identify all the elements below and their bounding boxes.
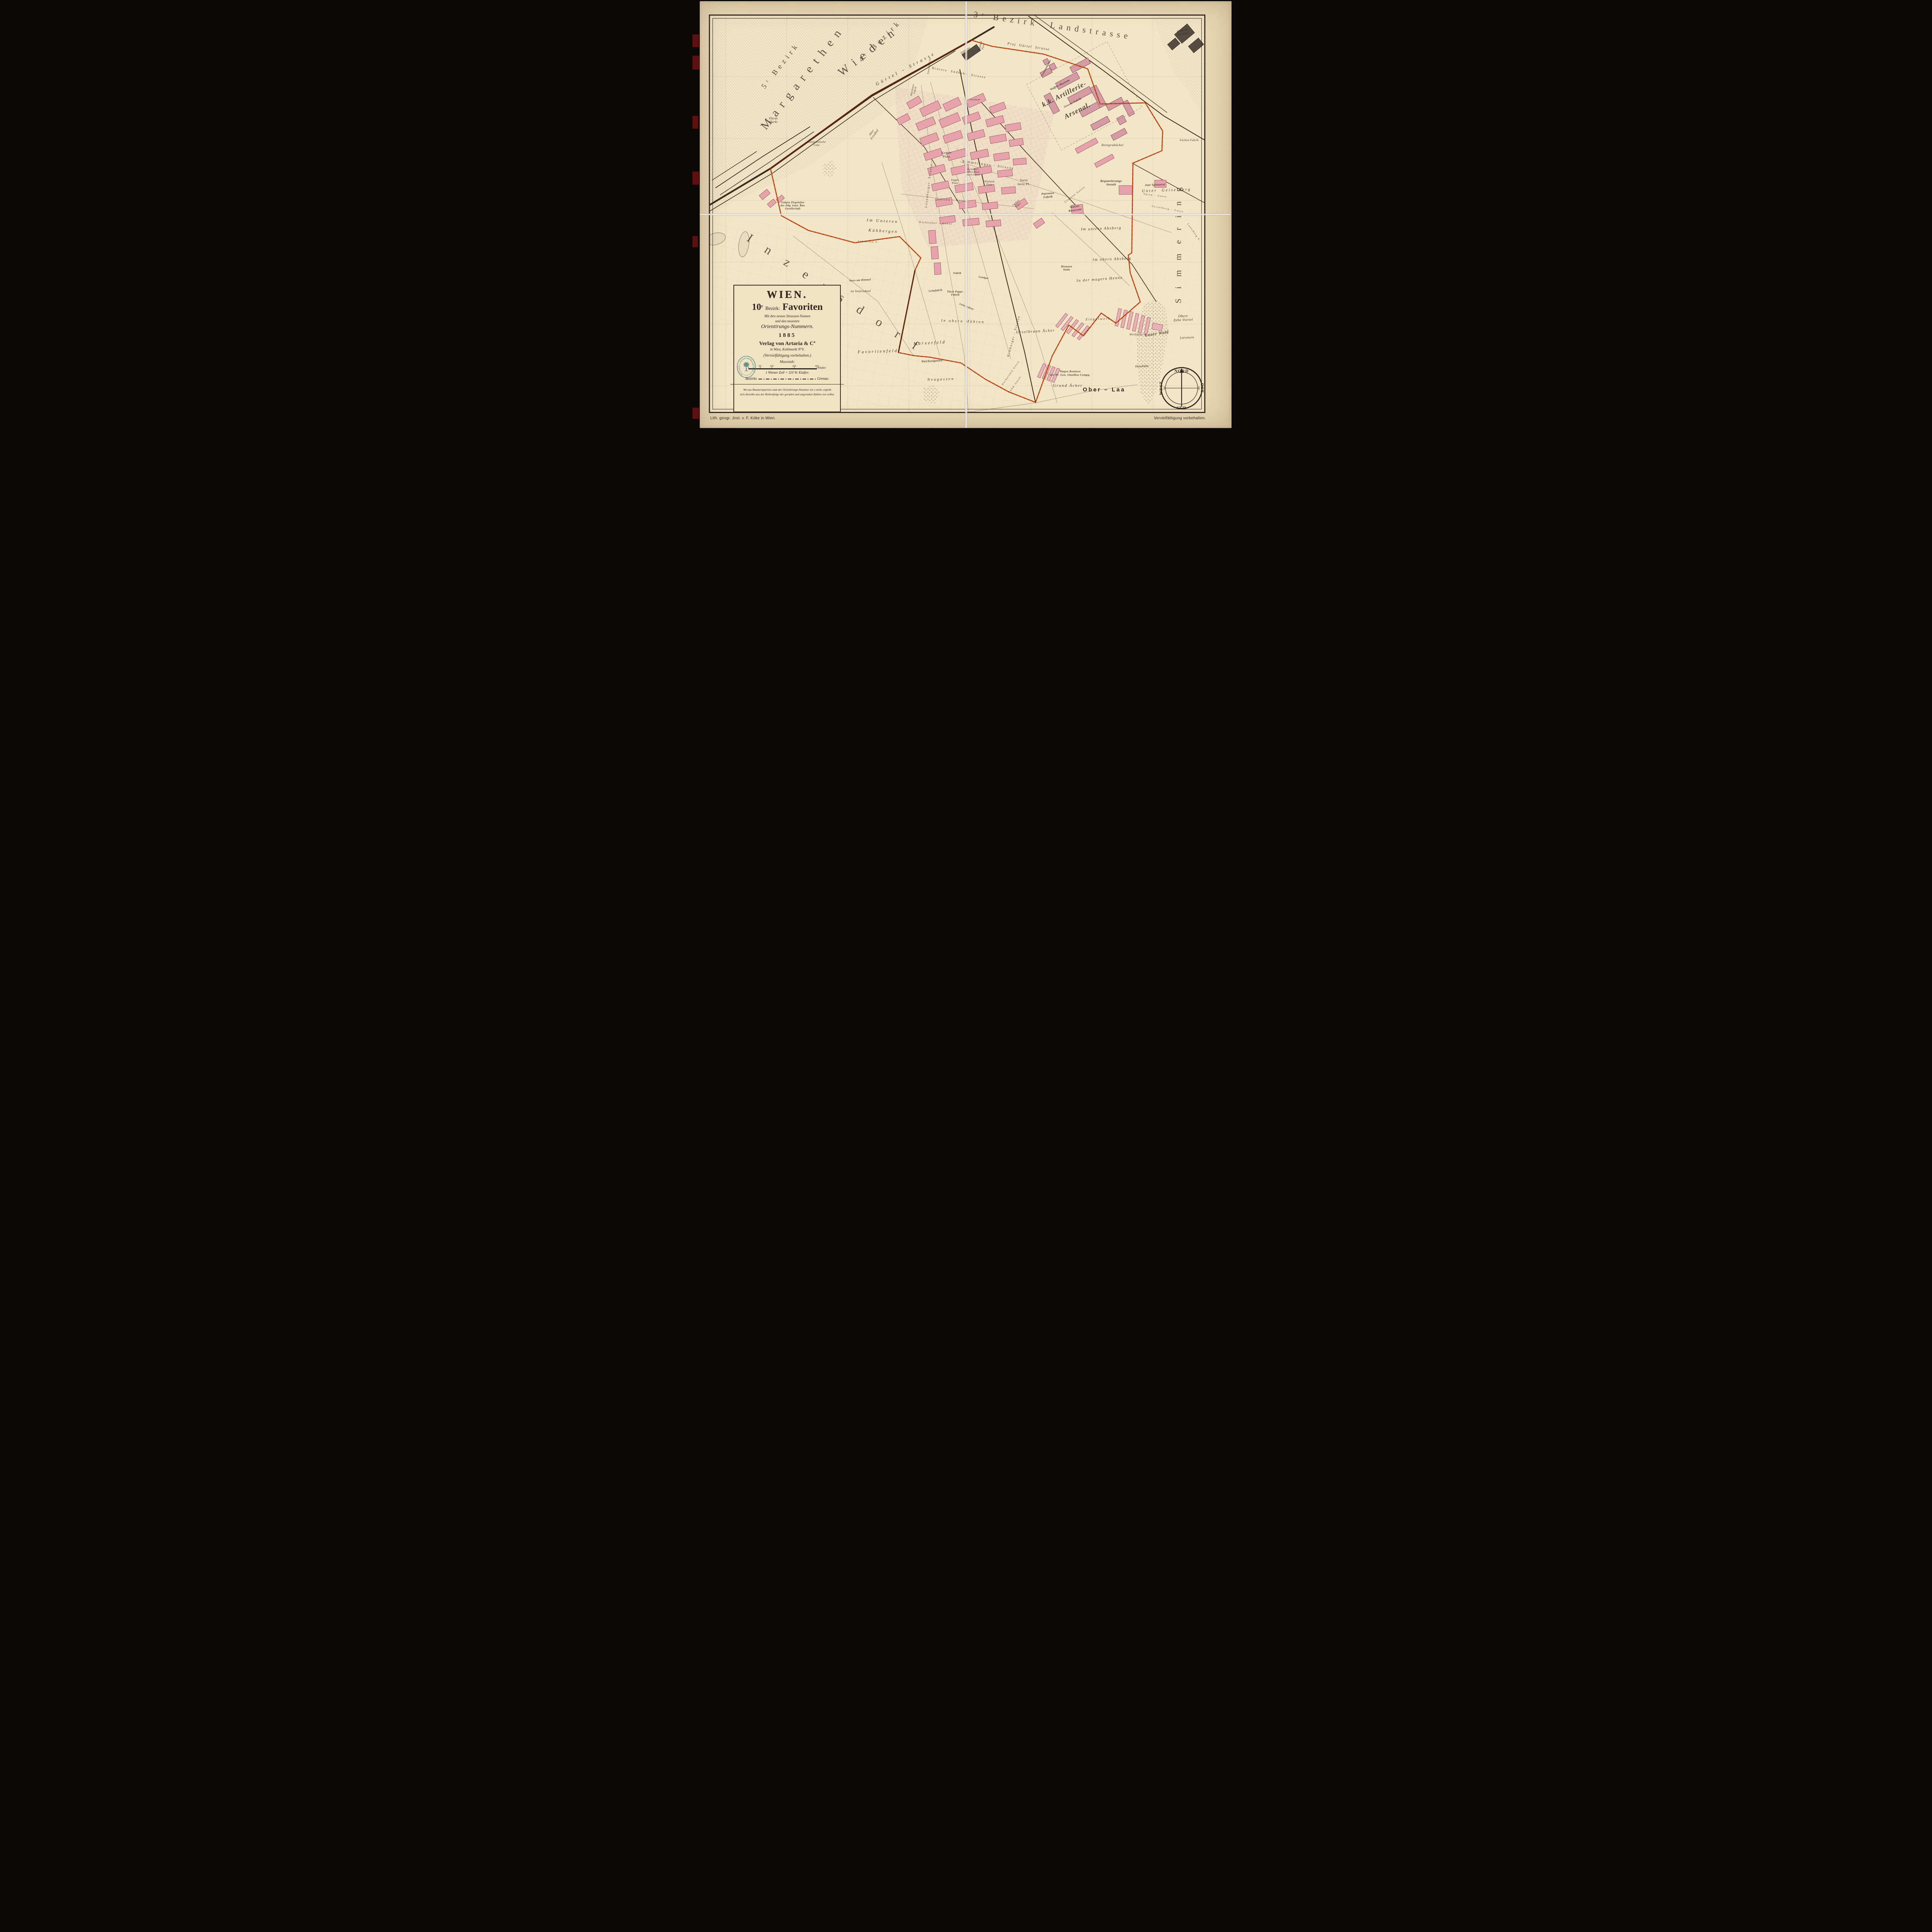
map-label: Maschinen- Fabrik [910, 83, 918, 97]
boundary-line-sample [759, 379, 816, 379]
map-label: Landgut [978, 276, 988, 280]
map-label: Theerhütte [1135, 364, 1149, 368]
scale-label: Massstab: [780, 360, 795, 364]
map-label: S i m m e r i n g [1173, 184, 1183, 303]
reproduction-rights: Vervielfältigung vorbehalten. [1154, 416, 1206, 420]
map-label: Wasser Reservoir [1068, 204, 1082, 213]
map-label: Kepler Platz [941, 151, 952, 159]
publisher: Verlag von Artaria & Cº [759, 341, 816, 347]
map-label: Favoritenfeld [857, 349, 898, 355]
district-word: Bezirk: [765, 305, 780, 311]
map-label: Unter Geiselberg [1141, 187, 1191, 194]
map-label: Bahnhof Platz [978, 41, 986, 52]
map-label: Neugassen [927, 377, 954, 383]
scale-bar-line [748, 368, 817, 369]
note-line-2: sich dieselbe aus der Reihenfolge der ge… [734, 392, 840, 397]
map-label: Reingrubäcker [1102, 143, 1124, 147]
district-number-suffix: r [761, 304, 763, 309]
map-label: In der magern Henne [1076, 276, 1123, 283]
map-sheet-photo: NORD SÜD OST WEST MargarethenWieden5ʳ Be… [692, 0, 1240, 429]
map-label: zu Inzersdorf [850, 289, 871, 293]
map-label: 3ʳ Bezirk Landstrasse [973, 10, 1132, 41]
map-label: Larunzen [1180, 336, 1194, 340]
scale-equivalence: 1 Wiener Zoll = 110 W. Klafter. [765, 371, 809, 374]
double-eagle-icon [743, 362, 750, 371]
district-number: 10 [752, 302, 761, 312]
map-label: Patronen Fabrik [1041, 192, 1054, 200]
map-label: Stein metz Pl. [1017, 179, 1030, 186]
map-label: Im obern Absberg [1092, 257, 1131, 262]
map-label: Eugen Platz [951, 179, 959, 185]
subtitle-line-2: und den neuesten [775, 319, 799, 323]
map-label: Im Unteren [866, 218, 898, 224]
map-label: Rothenhof – Gasse [919, 221, 952, 226]
map-label: Matzleinsdorfer Linie [808, 141, 826, 147]
map-label: Leimsiederei [959, 303, 974, 311]
map-label: Wieland Platz [984, 180, 994, 186]
map-label: Brunnen Stube [1061, 265, 1072, 271]
map-label: Spinn – Gasse [1143, 193, 1167, 199]
subtitle-line-3: Orientirungs-Nummern. [761, 324, 814, 330]
map-label: Quellen – Gasse [935, 198, 967, 203]
subtitle-line-1: Mit den neuen Strassen-Namen [764, 315, 810, 318]
map-label: Gasometer [969, 99, 981, 102]
publisher-address: in Wien, Kohlmarkt N°9. [770, 347, 804, 351]
map-label: Himberger – Strasse [1007, 315, 1021, 357]
map-label: Jute Spinnerei [1145, 183, 1165, 187]
scale-bar: 50 100 200 300 Klafter [748, 365, 826, 369]
map-label: Marxerfeld [913, 340, 946, 347]
map-label: Schröllen G. [858, 240, 879, 243]
district-title: 10r Bezirk: Favoriten [752, 302, 823, 312]
map-label: Alter Friedhof [867, 127, 879, 140]
map-label: Ziegelwerk [1085, 317, 1111, 321]
map-label: Laaer Wald [1145, 330, 1169, 338]
publication-year: 1885 [779, 332, 796, 339]
map-label: Weichselgarten [921, 359, 942, 364]
map-label: Laaerberg G. [1186, 223, 1201, 243]
district-name: Favoriten [782, 302, 823, 312]
map-label: Croaten Gasse [1064, 186, 1086, 204]
map-label: Ober – Laa [1083, 387, 1125, 393]
map-label: Obere Zehn Viertel [1173, 314, 1193, 322]
map-label: Fabrik [953, 272, 961, 275]
map-label: Central- Viehhof [1177, 28, 1189, 37]
map-label: Kühbergen [868, 228, 898, 234]
map-label: Wirthshaus [1129, 333, 1143, 336]
map-label: Gellert Platz [1012, 199, 1022, 209]
map-label: Proj Gürtel Strasse [1007, 41, 1050, 51]
map-label: Galgen Ziegelofen der Allg. öster. Bau G… [781, 201, 805, 210]
title-cartouche: WIEN. 10r Bezirk: Favoriten Mit den neue… [733, 285, 841, 412]
map-label: Theer Pappe- Fabrik [947, 290, 964, 296]
map-label: Laxenburger Strasse [924, 163, 933, 208]
map-label: Leimfabrik [928, 289, 942, 293]
map-label: Pferde Markt [769, 117, 778, 124]
map-label: Urselbrunn Äcker [1016, 328, 1055, 335]
note-line-1: Wo aus Raumersparniss statt der Orientir… [734, 388, 840, 392]
map-label: Commandantur [1041, 59, 1052, 77]
scale-tick-labels: 50 100 200 300 [748, 365, 817, 368]
map-label: Lehm Gasse [1008, 376, 1022, 393]
lithographer-imprint: Lith. geogr. Jnst. v. F. Köke in Wien [710, 416, 775, 420]
map-label: Hintere Südbahn Strasse [931, 66, 986, 80]
scale-unit: Klafter [818, 366, 826, 369]
rights-notice: (Vervielfältigung vorbehalten.) [764, 354, 811, 358]
map-label: Wagen Remisen der Wʳ. Gen. Omnibus Compg… [1050, 370, 1090, 377]
library-stamp: WIENER · STADTBIBLIOTHEK [736, 355, 756, 378]
boundary-legend: Bezirks Grenze. [745, 377, 829, 381]
map-title: WIEN. [767, 289, 808, 301]
map-label: Stoss am Himmel [849, 278, 871, 282]
map-label: Im untern Absberg [1081, 226, 1121, 232]
legend-right-label: Grenze. [817, 377, 829, 381]
map-label: In obern Mühren [941, 319, 985, 325]
map-label: M. Hofherr Landwirthsch. Masch.Fabrik [966, 168, 980, 176]
orientation-note: Wo aus Raumersparniss statt der Orientir… [730, 384, 844, 397]
map-label: Farben Fabrik [1180, 139, 1199, 142]
map-label: Grund Äcker [1053, 383, 1083, 388]
map-label: Bequartierungs Anstalt [1100, 180, 1122, 187]
map-label: Südbahn [960, 46, 970, 55]
map-label: 4ʳ Bezirk [857, 18, 903, 64]
